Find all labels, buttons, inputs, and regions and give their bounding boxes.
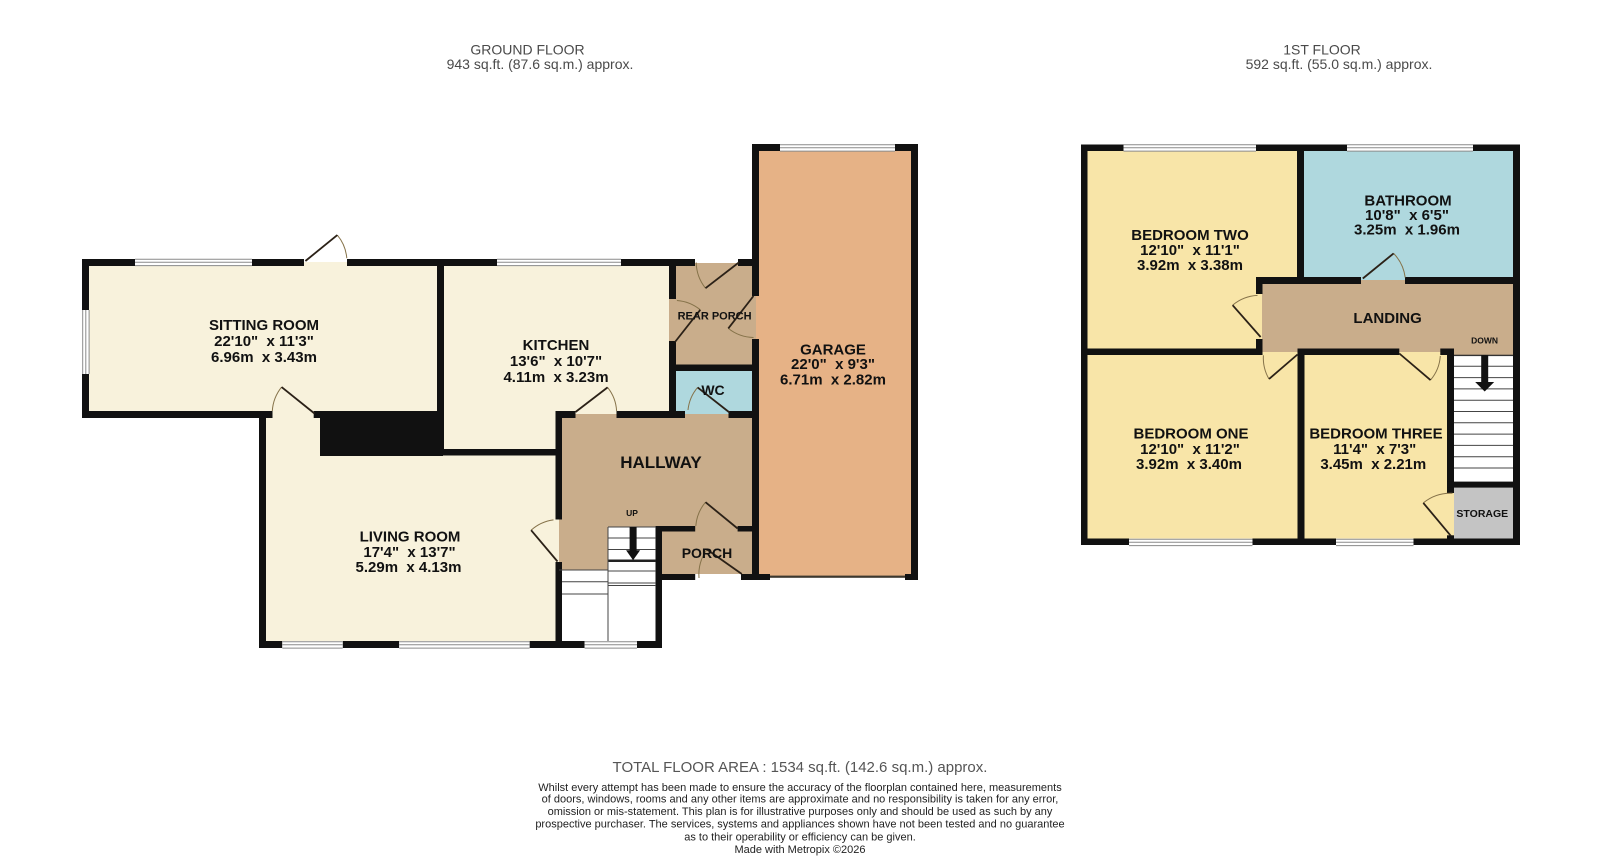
svg-text:BEDROOM THREE: BEDROOM THREE — [1309, 426, 1442, 443]
svg-text:STORAGE: STORAGE — [1456, 508, 1508, 520]
svg-text:3.25m x 1.96m: 3.25m x 1.96m — [1354, 222, 1460, 239]
svg-text:3.92m x 3.38m: 3.92m x 3.38m — [1137, 257, 1243, 274]
svg-text:UP: UP — [626, 508, 638, 518]
svg-text:4.11m x 3.23m: 4.11m x 3.23m — [503, 369, 608, 386]
svg-text:5.29m x 4.13m: 5.29m x 4.13m — [356, 559, 462, 576]
svg-text:WC: WC — [701, 382, 724, 398]
svg-text:LIVING ROOM: LIVING ROOM — [360, 529, 461, 546]
svg-text:prospective purchaser. The ser: prospective purchaser. The services, sys… — [535, 819, 1064, 831]
svg-text:6.71m x 2.82m: 6.71m x 2.82m — [780, 372, 886, 389]
svg-text:BEDROOM ONE: BEDROOM ONE — [1133, 426, 1248, 443]
svg-text:22'10" x 11'3": 22'10" x 11'3" — [214, 333, 314, 350]
svg-text:22'0" x 9'3": 22'0" x 9'3" — [791, 356, 875, 373]
svg-text:SITTING ROOM: SITTING ROOM — [209, 317, 319, 334]
svg-text:KITCHEN: KITCHEN — [523, 337, 590, 354]
svg-text:as to their operability or eff: as to their operability or efficiency ca… — [684, 832, 916, 844]
svg-text:HALLWAY: HALLWAY — [620, 453, 702, 472]
svg-text:Whilst every attempt has been: Whilst every attempt has been made to en… — [538, 782, 1062, 794]
svg-text:omission or mis-statement. Thi: omission or mis-statement. This plan is … — [548, 806, 1053, 818]
svg-text:592 sq.ft. (55.0 sq.m.) approx: 592 sq.ft. (55.0 sq.m.) approx. — [1246, 56, 1433, 72]
svg-text:TOTAL FLOOR AREA : 1534 sq.ft.: TOTAL FLOOR AREA : 1534 sq.ft. (142.6 sq… — [613, 759, 988, 776]
svg-text:3.92m x 3.40m: 3.92m x 3.40m — [1136, 456, 1242, 473]
svg-text:3.45m x 2.21m: 3.45m x 2.21m — [1320, 456, 1426, 473]
svg-text:of doors, windows, rooms and a: of doors, windows, rooms and any other i… — [542, 794, 1059, 806]
svg-text:Made with Metropix ©2026: Made with Metropix ©2026 — [734, 844, 865, 856]
svg-text:13'6" x 10'7": 13'6" x 10'7" — [510, 353, 602, 370]
svg-text:LANDING: LANDING — [1353, 310, 1421, 327]
svg-text:6.96m x 3.43m: 6.96m x 3.43m — [211, 349, 317, 366]
svg-text:943 sq.ft. (87.6 sq.m.) approx: 943 sq.ft. (87.6 sq.m.) approx. — [447, 56, 634, 72]
svg-text:REAR PORCH: REAR PORCH — [678, 311, 752, 323]
svg-text:DOWN: DOWN — [1471, 336, 1498, 346]
svg-text:PORCH: PORCH — [682, 545, 733, 561]
